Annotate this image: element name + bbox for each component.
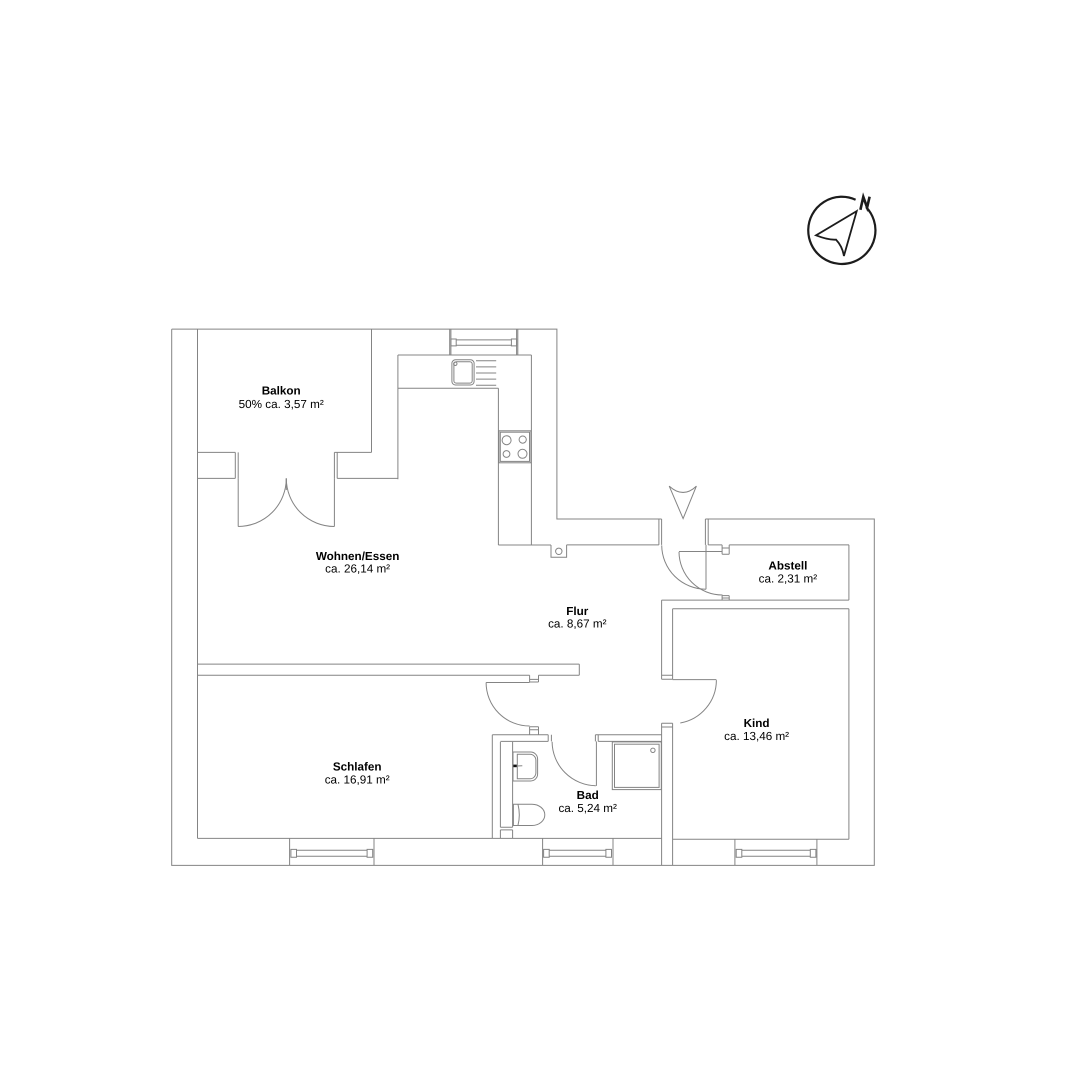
svg-text:ca. 26,14 m²: ca. 26,14 m² [325,563,390,576]
svg-text:ca. 5,24 m²: ca. 5,24 m² [558,802,617,815]
svg-text:Kind: Kind [744,717,770,730]
svg-text:Bad: Bad [577,789,599,802]
svg-text:ca. 16,91 m²: ca. 16,91 m² [325,773,390,786]
svg-text:Abstell: Abstell [768,560,807,573]
svg-text:Wohnen/Essen: Wohnen/Essen [316,550,400,563]
svg-text:Balkon: Balkon [262,385,301,398]
svg-text:Schlafen: Schlafen [333,761,382,774]
svg-text:ca. 8,67 m²: ca. 8,67 m² [548,618,607,631]
svg-text:ca. 13,46 m²: ca. 13,46 m² [724,730,789,743]
svg-text:Flur: Flur [566,605,589,618]
svg-text:ca. 2,31 m²: ca. 2,31 m² [759,572,818,585]
svg-text:50% ca. 3,57 m²: 50% ca. 3,57 m² [239,398,324,411]
